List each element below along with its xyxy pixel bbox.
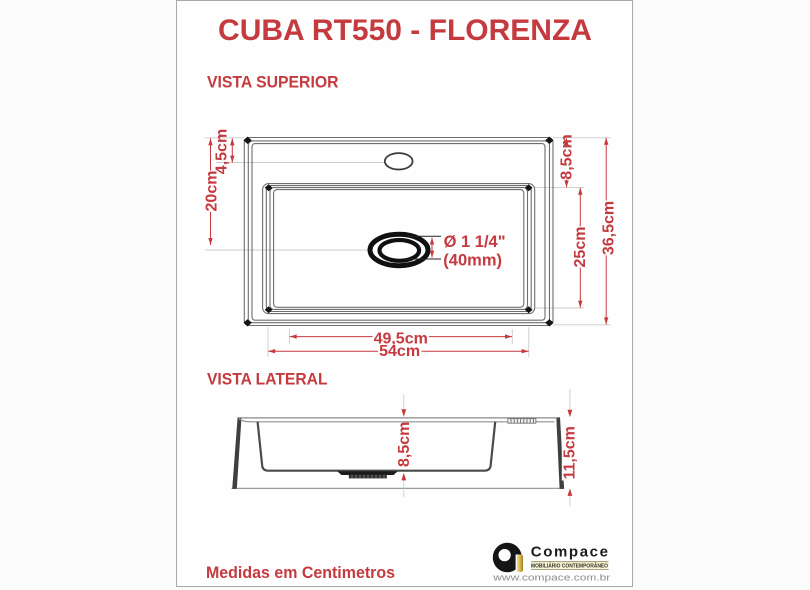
svg-text:11,5cm: 11,5cm [561, 426, 578, 479]
svg-text:25cm: 25cm [572, 227, 589, 268]
svg-text:MOBILIÁRIO CONTEMPORÂNEO: MOBILIÁRIO CONTEMPORÂNEO [531, 562, 609, 569]
svg-text:Medidas em Centimetros: Medidas em Centimetros [206, 564, 395, 582]
svg-text:Ø 1 1/4": Ø 1 1/4" [444, 233, 506, 251]
svg-text:www.compace.com.br: www.compace.com.br [492, 573, 610, 583]
svg-text:8,5cm: 8,5cm [396, 422, 413, 467]
svg-text:4,5cm: 4,5cm [213, 129, 230, 174]
svg-text:36,5cm: 36,5cm [600, 201, 617, 255]
svg-text:8,5cm: 8,5cm [558, 134, 575, 179]
svg-text:54cm: 54cm [379, 343, 420, 360]
svg-text:Compace: Compace [531, 544, 610, 561]
svg-text:20cm: 20cm [203, 171, 220, 212]
svg-text:CUBA RT550 - FLORENZA: CUBA RT550 - FLORENZA [218, 14, 592, 47]
svg-text:VISTA SUPERIOR: VISTA SUPERIOR [207, 74, 339, 92]
svg-text:VISTA LATERAL: VISTA LATERAL [207, 370, 328, 388]
svg-text:(40mm): (40mm) [443, 251, 502, 269]
